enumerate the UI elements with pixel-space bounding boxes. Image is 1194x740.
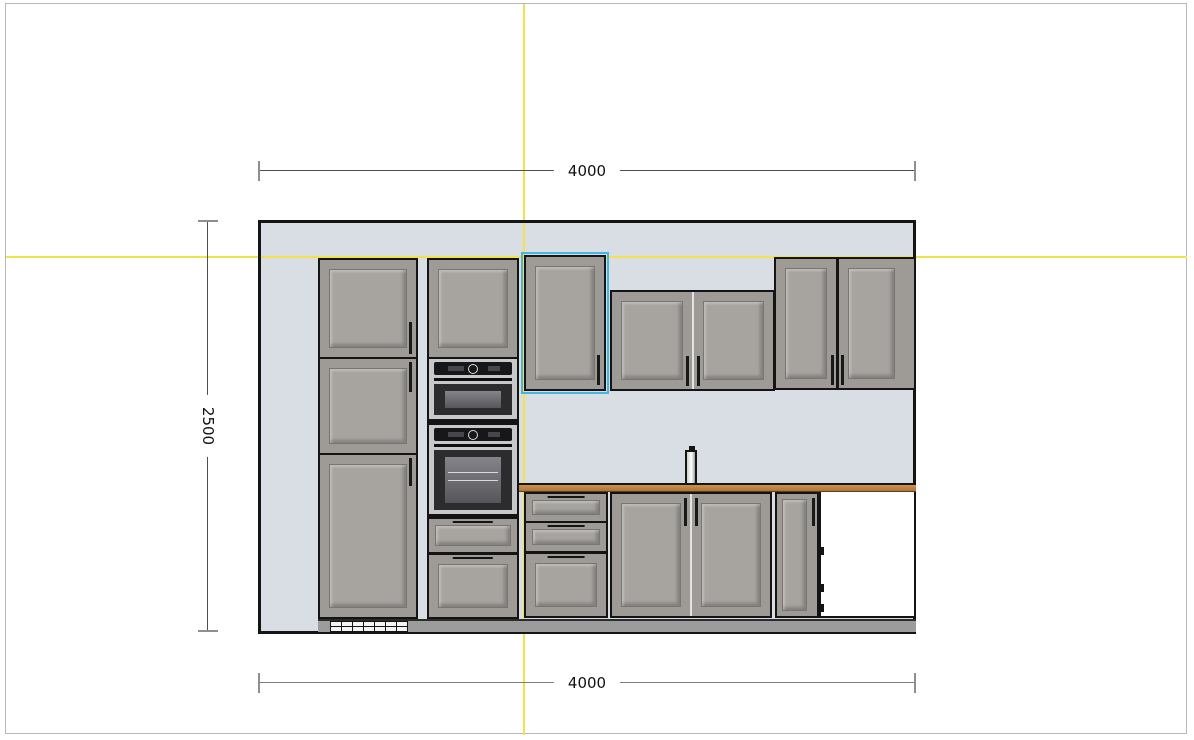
- tall-cabinet-door-bottom[interactable]: [320, 455, 416, 617]
- wall-cabinet-double-right[interactable]: [774, 257, 916, 390]
- microwave[interactable]: [429, 359, 517, 419]
- dimension-bottom-label: 4000: [554, 674, 620, 692]
- knob-icon: [468, 430, 478, 440]
- mid-cabinet-door-left[interactable]: [612, 292, 692, 389]
- door-handle: [831, 355, 834, 385]
- door-handle: [409, 322, 412, 354]
- door-handle: [409, 362, 412, 392]
- appliance-gap[interactable]: [819, 492, 916, 618]
- oven-window: [434, 450, 512, 510]
- dimension-left: 2500: [198, 220, 218, 632]
- knob-icon: [468, 364, 478, 374]
- faucet[interactable]: [685, 450, 697, 485]
- countertop[interactable]: [519, 483, 916, 492]
- mid-cabinet-door-right[interactable]: [694, 292, 774, 389]
- dimension-left-label: 2500: [199, 395, 217, 457]
- hinge-mark: [820, 584, 824, 592]
- drawer-handle: [548, 525, 585, 527]
- dimension-bottom: 4000: [258, 673, 916, 693]
- hinge-mark: [820, 604, 824, 612]
- sink-base-cabinet[interactable]: [610, 492, 772, 618]
- oven-controls: [434, 428, 512, 441]
- microwave-controls: [434, 362, 512, 375]
- base-drawer-1[interactable]: [526, 494, 606, 521]
- right-cabinet-door-left[interactable]: [776, 259, 836, 388]
- drawer-handle: [453, 521, 493, 523]
- door-handle: [695, 498, 698, 526]
- tall-cabinet[interactable]: [318, 258, 418, 619]
- door-handle: [697, 356, 700, 386]
- vent-grille: [330, 621, 408, 632]
- tower-drawer-2[interactable]: [429, 555, 517, 617]
- planner-canvas[interactable]: 4000 4000 2500: [0, 0, 1194, 740]
- drawer-handle: [453, 557, 493, 559]
- wall-cabinet-selected[interactable]: [521, 252, 609, 394]
- hinge-mark: [820, 547, 824, 555]
- right-cabinet-door-right[interactable]: [839, 259, 904, 388]
- dimension-top: 4000: [258, 161, 916, 181]
- oven-handle: [434, 444, 512, 447]
- tower-top-door[interactable]: [429, 260, 517, 357]
- wall-cabinet-double-mid[interactable]: [610, 290, 775, 391]
- door-handle: [684, 498, 687, 526]
- base-drawer-2[interactable]: [526, 523, 606, 551]
- microwave-window: [434, 384, 512, 415]
- base-drawer-3[interactable]: [526, 554, 606, 616]
- drawer-handle: [548, 496, 585, 498]
- door-handle: [597, 355, 600, 385]
- door-handle: [409, 458, 412, 486]
- door-handle: [812, 498, 815, 526]
- sink-base-door-left[interactable]: [612, 494, 690, 616]
- door-handle: [841, 355, 844, 385]
- right-cabinet-filler: [904, 259, 914, 388]
- dimension-top-label: 4000: [554, 162, 620, 180]
- sink-base-door-right[interactable]: [692, 494, 770, 616]
- oven-tower[interactable]: [427, 258, 519, 619]
- base-drawer-unit[interactable]: [524, 492, 608, 618]
- drawer-handle: [548, 556, 585, 558]
- door-handle: [686, 356, 689, 386]
- wall-cabinet-selected-door[interactable]: [524, 255, 606, 391]
- tall-cabinet-door-middle[interactable]: [320, 359, 416, 453]
- tall-cabinet-door-top[interactable]: [320, 260, 416, 357]
- oven[interactable]: [429, 425, 517, 514]
- tower-drawer-1[interactable]: [429, 519, 517, 552]
- narrow-base-cabinet[interactable]: [775, 492, 819, 618]
- narrow-base-door[interactable]: [777, 494, 817, 616]
